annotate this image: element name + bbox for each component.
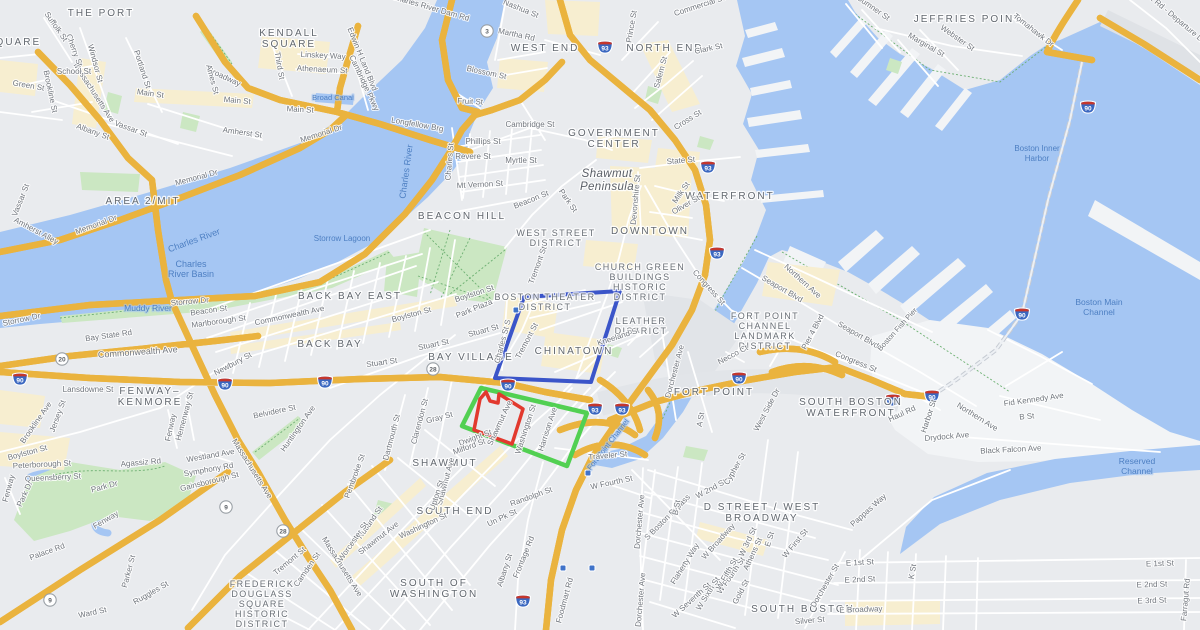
svg-text:93: 93 xyxy=(601,46,609,53)
svg-text:93: 93 xyxy=(519,600,527,607)
svg-text:3: 3 xyxy=(485,28,489,35)
transit-station-icon xyxy=(560,565,566,571)
state-route-shield-28: 28 xyxy=(427,363,439,375)
svg-text:90: 90 xyxy=(504,384,512,391)
svg-text:90: 90 xyxy=(16,378,24,385)
svg-text:90: 90 xyxy=(1018,313,1026,320)
svg-text:90: 90 xyxy=(321,381,329,388)
state-route-shield-20: 20 xyxy=(56,353,68,365)
state-route-shield-9: 9 xyxy=(44,594,56,606)
svg-text:90: 90 xyxy=(735,377,743,384)
svg-text:90: 90 xyxy=(1084,106,1092,113)
svg-text:9: 9 xyxy=(48,597,52,604)
svg-text:9: 9 xyxy=(224,504,228,511)
svg-text:93: 93 xyxy=(713,252,721,259)
state-route-shield-9: 9 xyxy=(220,501,232,513)
svg-text:90: 90 xyxy=(889,399,897,406)
svg-text:93: 93 xyxy=(618,408,626,415)
svg-text:20: 20 xyxy=(58,356,66,363)
svg-text:93: 93 xyxy=(591,408,599,415)
state-route-shield-28: 28 xyxy=(277,525,289,537)
svg-text:28: 28 xyxy=(429,366,437,373)
state-route-shield-3: 3 xyxy=(481,25,493,37)
svg-text:90: 90 xyxy=(928,395,936,402)
svg-text:90: 90 xyxy=(221,383,229,390)
transit-station-icon xyxy=(585,470,591,476)
svg-text:93: 93 xyxy=(704,166,712,173)
map-viewport[interactable]: Boston map with blue, green and red boun… xyxy=(0,0,1200,630)
transit-station-icon xyxy=(589,565,595,571)
transit-station-icon xyxy=(513,307,519,313)
boston-map[interactable]: 909090909090909090939393939393282899203 … xyxy=(0,0,1200,630)
svg-text:28: 28 xyxy=(279,528,287,535)
